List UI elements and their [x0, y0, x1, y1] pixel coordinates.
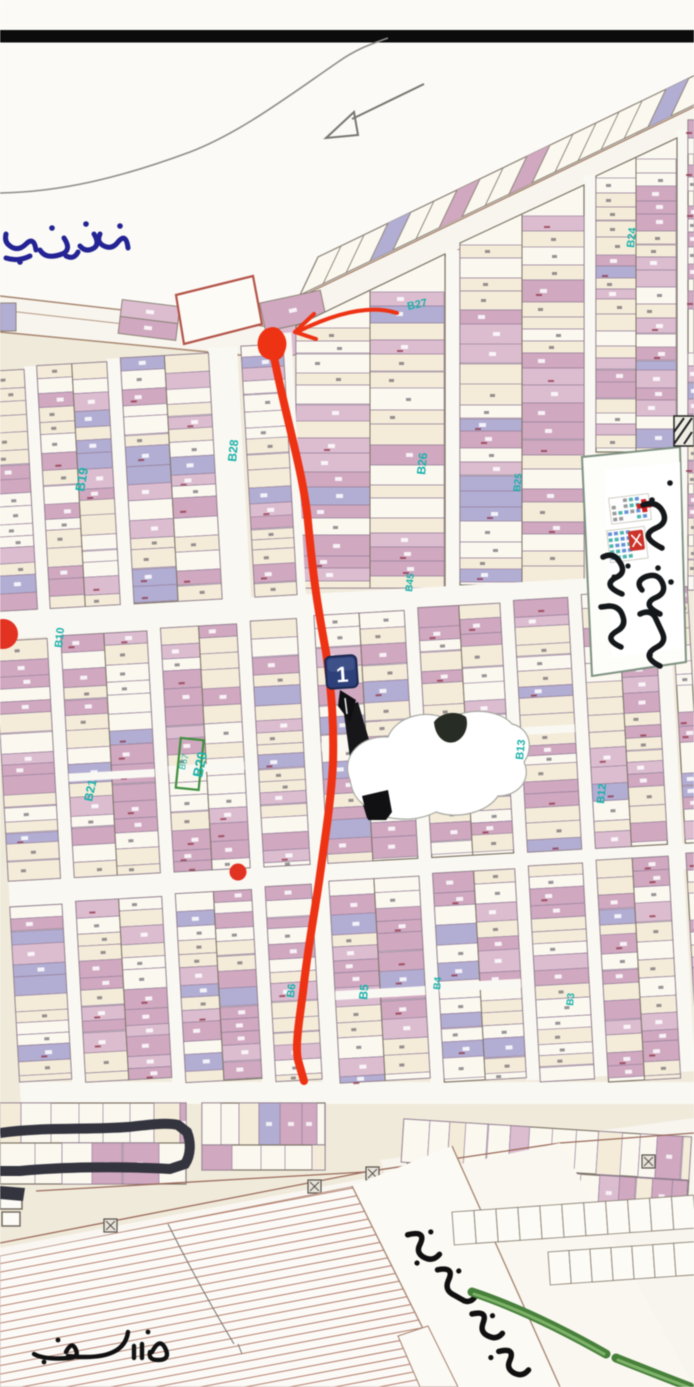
svg-text:B12: B12 [595, 783, 609, 804]
svg-text:B5: B5 [356, 983, 372, 1000]
svg-text:B10: B10 [53, 627, 67, 648]
svg-text:B4: B4 [432, 976, 444, 990]
svg-text:B45: B45 [404, 572, 417, 592]
svg-text:B28: B28 [225, 439, 241, 463]
svg-text:B13: B13 [514, 739, 528, 760]
svg-text:B24: B24 [625, 226, 639, 248]
svg-text:B6: B6 [285, 983, 298, 998]
svg-text:B25: B25 [512, 472, 525, 492]
svg-text:B3: B3 [565, 992, 577, 1006]
svg-text:1: 1 [335, 662, 349, 688]
svg-text:B26: B26 [414, 452, 430, 476]
